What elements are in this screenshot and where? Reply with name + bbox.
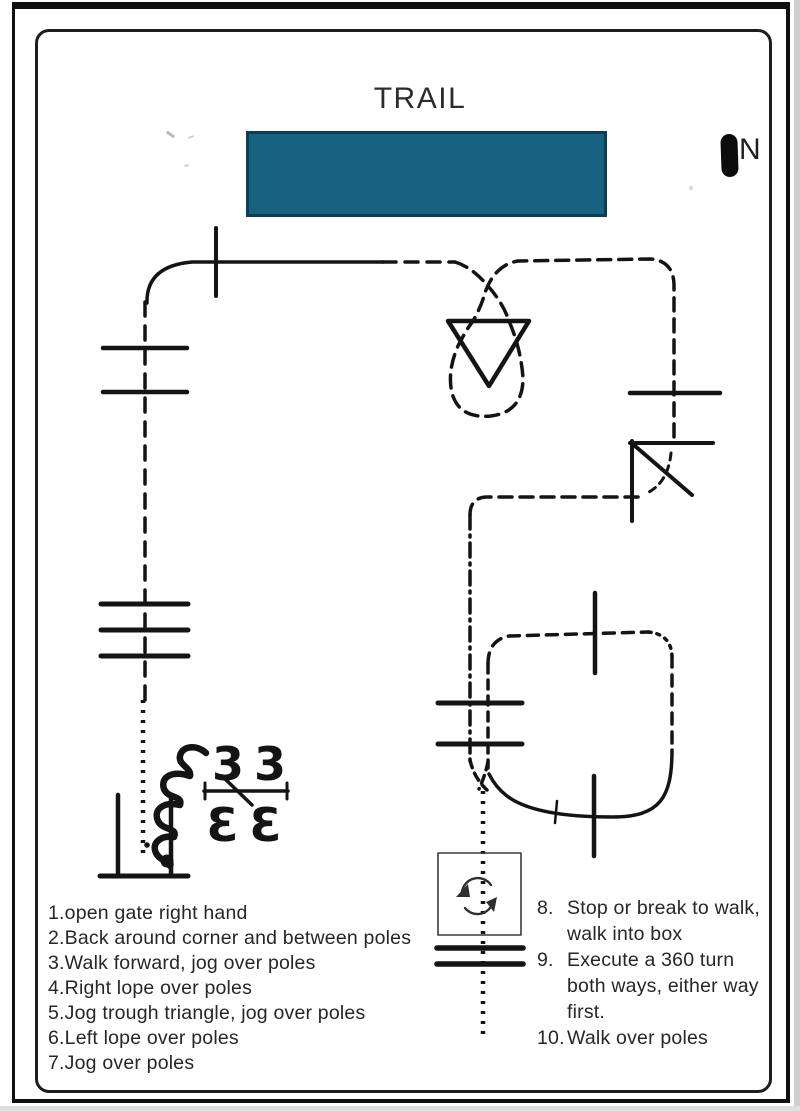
instruction-item: 8. Stop or break to walk, walk into box — [537, 895, 782, 947]
triangle-obstacle — [448, 321, 529, 386]
instruction-item: 1.open gate right hand — [48, 901, 458, 926]
instruction-item: 5.Jog trough triangle, jog over poles — [48, 1001, 458, 1026]
marker-glyph-bottom-left: 3 — [206, 798, 238, 852]
gate-rope-dot — [144, 842, 150, 848]
marker-glyph-bottom-right: 3 — [249, 798, 281, 852]
path-mid-horizontal — [470, 497, 638, 515]
instruction-number: 8. — [537, 895, 567, 921]
path-innerloop-bottom-solid — [489, 750, 672, 817]
scan-edge-bottom — [0, 1106, 800, 1111]
instruction-item: 7.Jog over poles — [48, 1051, 458, 1076]
back-through-poles-marker: 3 3 3 3 — [204, 737, 288, 852]
instruction-item: 2.Back around corner and between poles — [48, 926, 458, 951]
rotation-arrows-icon — [456, 878, 497, 914]
gate-rope-squiggle — [155, 747, 206, 866]
instruction-item: 10. Walk over poles — [537, 1025, 782, 1051]
instruction-item: 4.Right lope over poles — [48, 976, 458, 1001]
instruction-text: Execute a 360 turn both ways, either way… — [567, 947, 759, 1025]
instructions-list-right: 8. Stop or break to walk, walk into box … — [537, 895, 782, 1051]
marker-glyph-top-right: 3 — [254, 737, 286, 791]
triangle-shape — [448, 321, 529, 386]
corner-diagonal — [635, 446, 692, 495]
path-innerloop-corner — [648, 632, 672, 656]
instruction-text: Stop or break to walk, walk into box — [567, 895, 760, 947]
instruction-number: 9. — [537, 947, 567, 973]
gate-rope-end — [161, 855, 174, 868]
instruction-item: 9. Execute a 360 turn both ways, either … — [537, 947, 782, 1025]
pole-markers — [101, 228, 720, 964]
gate-obstacle — [100, 747, 206, 876]
path-innerloop-top — [488, 632, 648, 664]
instruction-item: 6.Left lope over poles — [48, 1026, 458, 1051]
instruction-number: 10. — [537, 1025, 567, 1051]
trail-pattern-page: TRAIL N — [0, 0, 800, 1111]
path-topleft-solid — [147, 262, 383, 303]
path-triangle-loop — [450, 259, 674, 440]
scan-edge-right — [794, 0, 800, 1111]
instructions-list-left: 1.open gate right hand 2.Back around cor… — [48, 901, 458, 1076]
tick-small — [555, 801, 557, 823]
instruction-text: Walk over poles — [567, 1025, 708, 1051]
instruction-item: 3.Walk forward, jog over poles — [48, 951, 458, 976]
